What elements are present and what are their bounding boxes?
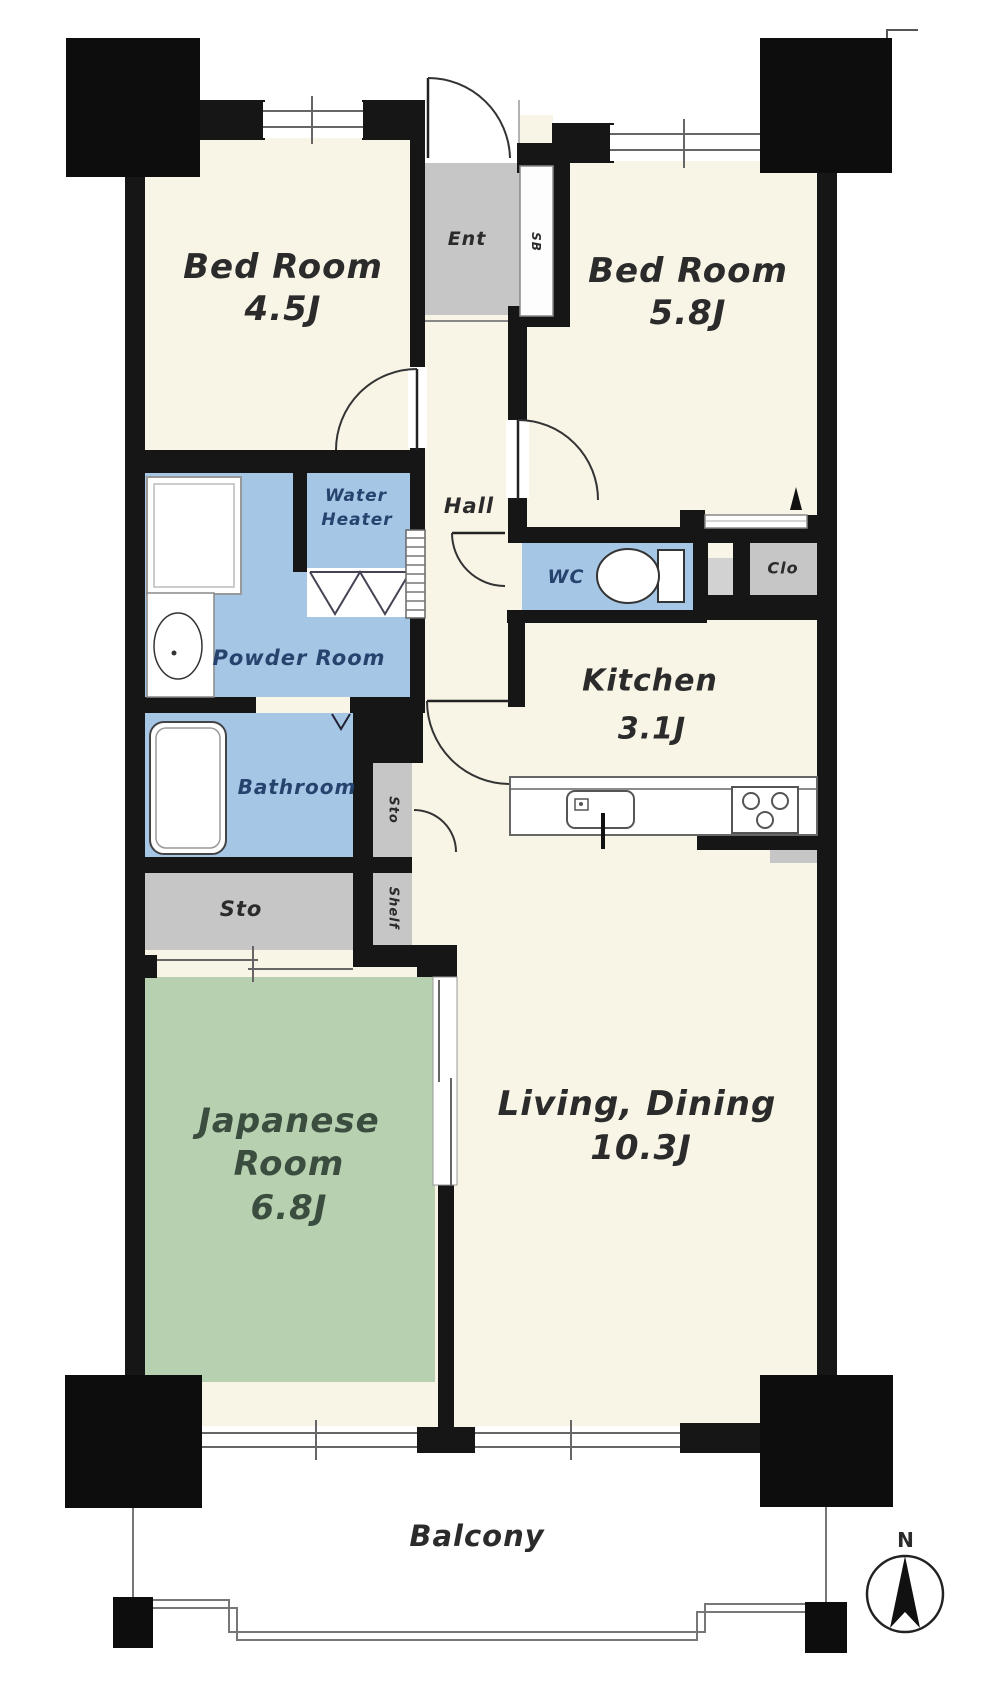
powder-room-label: Powder Room — [212, 646, 385, 670]
closet-alcove — [708, 558, 733, 597]
wall — [125, 150, 145, 1430]
compass — [867, 1556, 943, 1632]
balcony-post-right — [805, 1602, 847, 1653]
entrance-label: Ent — [448, 228, 487, 250]
wall — [125, 857, 357, 873]
closet-label: Clo — [767, 559, 798, 578]
pillar-top-left — [66, 38, 200, 177]
bedroom1-size-label: 4.5J — [245, 289, 322, 329]
storage-japanese-slider — [157, 946, 353, 982]
water-heater-label-line1: Water — [325, 486, 387, 506]
wall — [417, 945, 457, 977]
storage-strip-label: Sto — [386, 796, 401, 824]
wall — [373, 857, 412, 873]
entrance-recess — [422, 95, 520, 163]
wall — [680, 1423, 762, 1453]
kitchen-name-label: Kitchen — [582, 664, 718, 699]
japanese-living-slider — [433, 977, 457, 1185]
window-japanese-balcony — [200, 1420, 417, 1460]
bathtub — [150, 722, 226, 854]
hall-label: Hall — [444, 494, 494, 518]
wall — [817, 160, 837, 1382]
toilet — [597, 549, 684, 603]
japanese-room-size-label: 6.8J — [251, 1188, 328, 1228]
floor-plan-drawing — [0, 0, 1000, 1693]
shelf-label: Shelf — [386, 887, 401, 930]
outside-strip — [553, 95, 763, 126]
wall — [508, 327, 527, 420]
shoe-shelf — [406, 530, 425, 618]
pillar-top-right — [760, 38, 892, 173]
floor-plan: Bed Room 4.5J Bed Room 5.8J Ent SB Hall … — [0, 0, 1000, 1693]
compass-north-label: N — [897, 1528, 915, 1552]
washing-machine-pan — [147, 477, 241, 594]
bathroom-label: Bathroom — [238, 775, 357, 799]
japanese-room-label-line2: Room — [234, 1144, 345, 1184]
wall — [417, 1427, 475, 1453]
wall — [125, 697, 256, 713]
wall — [362, 100, 412, 140]
window-bedroom1 — [263, 96, 363, 144]
wall — [553, 123, 570, 319]
japanese-room-label-line1: Japanese — [198, 1101, 379, 1141]
wall — [438, 1185, 454, 1427]
pillar-bottom-left — [65, 1375, 202, 1508]
bedroom2-name-label: Bed Room — [588, 251, 788, 291]
counter-end-block — [770, 850, 817, 863]
kitchen-size-label: 3.1J — [618, 712, 686, 747]
wc-label: WC — [548, 566, 585, 588]
living-dining-name-label: Living, Dining — [498, 1084, 777, 1124]
wall — [507, 610, 707, 623]
wall — [353, 945, 417, 967]
window-bedroom2 — [610, 119, 760, 168]
wall — [680, 510, 705, 528]
wall — [125, 450, 410, 473]
wall — [293, 473, 307, 572]
stove — [732, 787, 798, 833]
living-dining-size-label: 10.3J — [590, 1128, 692, 1168]
wall — [370, 713, 423, 763]
balcony-post-left — [113, 1597, 153, 1648]
wall — [125, 955, 157, 978]
wall — [508, 527, 708, 543]
wall — [350, 697, 425, 713]
water-heater-label-line2: Heater — [321, 510, 392, 530]
pillar-bottom-right — [760, 1375, 893, 1507]
wall — [508, 610, 525, 707]
bedroom1-name-label: Bed Room — [183, 247, 383, 287]
wall — [733, 543, 750, 597]
storage-room-label: Sto — [220, 897, 263, 921]
bedroom2-size-label: 5.8J — [650, 293, 727, 333]
balcony-label: Balcony — [409, 1519, 544, 1553]
wall — [200, 100, 265, 140]
window-living-balcony — [475, 1420, 680, 1460]
wall — [705, 528, 817, 543]
wall — [705, 595, 817, 620]
vanity-sink — [147, 593, 214, 697]
shaft-label: SB — [529, 232, 543, 252]
